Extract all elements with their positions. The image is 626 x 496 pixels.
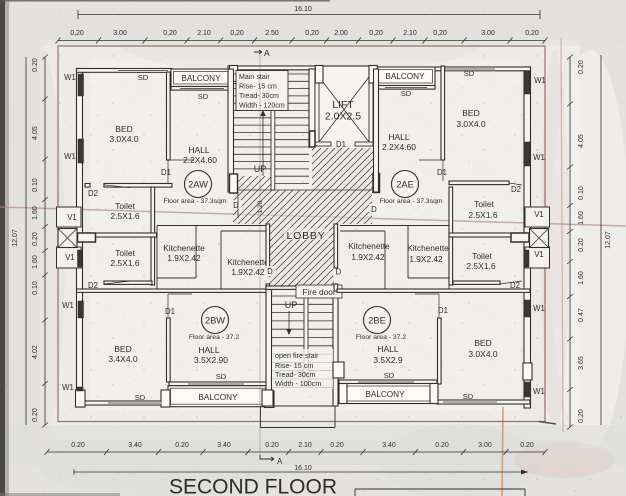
svg-text:open fire stair: open fire stair — [275, 351, 319, 360]
svg-text:0,20: 0,20 — [230, 30, 244, 37]
svg-text:2.5X1.6: 2.5X1.6 — [110, 258, 140, 268]
svg-text:Toilet: Toilet — [474, 199, 494, 209]
svg-text:0.20: 0.20 — [265, 442, 279, 449]
svg-text:2.10: 2.10 — [403, 30, 417, 37]
svg-text:HALL: HALL — [198, 345, 220, 355]
svg-text:Floor area - 37.2: Floor area - 37.2 — [356, 334, 406, 341]
svg-text:BALCONY: BALCONY — [385, 72, 425, 81]
svg-text:2.5X1.6: 2.5X1.6 — [110, 211, 140, 221]
svg-text:0.20: 0.20 — [32, 408, 39, 422]
svg-text:2.0X2.5: 2.0X2.5 — [325, 111, 361, 123]
svg-text:0,20: 0,20 — [369, 30, 383, 37]
svg-text:D1: D1 — [165, 307, 175, 316]
svg-text:4.05: 4.05 — [32, 126, 39, 140]
svg-text:Kitchenette: Kitchenette — [227, 257, 269, 267]
svg-text:12.07: 12.07 — [12, 229, 19, 247]
svg-text:SECOND FLOOR: SECOND FLOOR — [169, 476, 337, 496]
svg-text:SD: SD — [384, 371, 395, 380]
svg-text:3.40: 3.40 — [128, 442, 142, 449]
svg-text:0.20: 0.20 — [71, 442, 85, 449]
svg-text:W1: W1 — [64, 152, 76, 161]
svg-text:0.10: 0.10 — [578, 186, 585, 200]
svg-text:2.2X4.60: 2.2X4.60 — [382, 142, 416, 152]
svg-text:0.20: 0.20 — [330, 442, 344, 449]
svg-text:0.20: 0.20 — [32, 232, 39, 246]
svg-text:D: D — [371, 205, 377, 214]
svg-text:2.10: 2.10 — [197, 30, 211, 37]
svg-text:0.20: 0.20 — [32, 58, 39, 72]
svg-text:3.40: 3.40 — [382, 442, 396, 449]
svg-text:0.20: 0.20 — [175, 442, 189, 449]
svg-text:LOBBY: LOBBY — [286, 230, 325, 242]
svg-text:2.5X1.6: 2.5X1.6 — [466, 261, 496, 271]
svg-text:2.5X1.6: 2.5X1.6 — [468, 210, 498, 220]
svg-text:0.10: 0.10 — [32, 178, 39, 192]
svg-text:SD: SD — [216, 372, 227, 381]
svg-text:Toilet: Toilet — [115, 201, 135, 211]
svg-text:V1: V1 — [67, 213, 77, 222]
svg-text:SD: SD — [401, 89, 412, 98]
svg-text:UP: UP — [285, 300, 298, 310]
svg-text:3.40: 3.40 — [217, 442, 231, 449]
svg-text:Floor area - 37.3sqm: Floor area - 37.3sqm — [163, 198, 226, 205]
svg-text:SD: SD — [135, 393, 146, 402]
svg-text:4.02: 4.02 — [32, 345, 39, 359]
svg-text:Rise- 15 cm: Rise- 15 cm — [275, 361, 313, 370]
svg-text:1.60: 1.60 — [32, 255, 39, 269]
svg-text:Floor area - 37.2: Floor area - 37.2 — [189, 334, 239, 341]
svg-text:3.0X4.0: 3.0X4.0 — [468, 349, 498, 359]
svg-text:16.10: 16.10 — [294, 6, 312, 13]
svg-text:BALCONY: BALCONY — [181, 74, 221, 83]
svg-text:BED: BED — [474, 338, 491, 348]
svg-text:Kitchenette: Kitchenette — [348, 241, 390, 251]
svg-text:2BW: 2BW — [205, 316, 225, 326]
svg-text:Width - 100cm: Width - 100cm — [275, 379, 321, 388]
svg-text:0.20: 0.20 — [435, 442, 449, 449]
svg-text:W1: W1 — [533, 304, 545, 313]
svg-text:0,20: 0,20 — [525, 30, 539, 37]
svg-text:Fire door: Fire door — [302, 287, 335, 297]
svg-text:Tread- 30cm: Tread- 30cm — [239, 92, 279, 100]
svg-text:3.00: 3.00 — [481, 30, 495, 37]
svg-text:3.00: 3.00 — [478, 442, 492, 449]
svg-text:0.10: 0.10 — [32, 281, 39, 295]
svg-text:BED: BED — [462, 108, 479, 118]
svg-text:2.10: 2.10 — [298, 442, 312, 449]
svg-text:1.9X2.42: 1.9X2.42 — [409, 254, 443, 264]
svg-text:Tread- 30cm: Tread- 30cm — [275, 370, 315, 379]
svg-text:2AW: 2AW — [188, 180, 208, 190]
svg-text:Width - 120cm: Width - 120cm — [239, 101, 285, 109]
svg-text:2AE: 2AE — [396, 180, 414, 190]
svg-text:D1: D1 — [336, 140, 346, 149]
svg-text:D1: D1 — [161, 168, 171, 177]
svg-text:A: A — [277, 457, 283, 466]
svg-text:16.10: 16.10 — [294, 465, 312, 472]
svg-text:3.0X4.0: 3.0X4.0 — [456, 119, 486, 129]
svg-text:1.9X2.42: 1.9X2.42 — [167, 253, 201, 263]
svg-text:1.20: 1.20 — [257, 200, 264, 213]
svg-text:3.00: 3.00 — [113, 30, 127, 37]
svg-text:V1: V1 — [65, 253, 75, 262]
svg-text:D2: D2 — [88, 189, 98, 198]
svg-text:D: D — [336, 268, 342, 277]
svg-text:4.05: 4.05 — [578, 134, 585, 148]
svg-text:0,20: 0,20 — [305, 30, 319, 37]
svg-text:V1: V1 — [534, 210, 544, 219]
svg-text:SD: SD — [198, 92, 209, 101]
svg-text:W1: W1 — [534, 76, 546, 85]
svg-text:SD: SD — [463, 392, 474, 401]
svg-text:0,20: 0,20 — [433, 30, 447, 37]
svg-text:2.50: 2.50 — [265, 30, 279, 37]
svg-text:BALCONY: BALCONY — [365, 390, 405, 399]
svg-text:3.65: 3.65 — [578, 356, 585, 370]
svg-text:HALL: HALL — [377, 344, 399, 354]
svg-text:Toilet: Toilet — [472, 251, 492, 261]
svg-text:0.20: 0.20 — [578, 409, 585, 423]
svg-text:0.20: 0.20 — [578, 238, 585, 252]
svg-text:HALL: HALL — [388, 132, 410, 142]
svg-text:D1: D1 — [438, 306, 448, 315]
svg-text:W1: W1 — [62, 301, 74, 310]
svg-text:HALL: HALL — [188, 145, 210, 155]
svg-text:3.0X4.0: 3.0X4.0 — [109, 134, 139, 144]
svg-text:W1: W1 — [533, 387, 545, 396]
svg-text:2.2X4.60: 2.2X4.60 — [183, 155, 217, 165]
svg-text:A: A — [264, 48, 270, 58]
svg-text:SD: SD — [138, 73, 149, 82]
svg-text:D: D — [267, 267, 273, 276]
svg-text:1.60: 1.60 — [578, 271, 585, 285]
svg-text:Kitchenette: Kitchenette — [407, 243, 449, 253]
svg-text:BALCONY: BALCONY — [198, 393, 238, 402]
svg-text:3.4X4.0: 3.4X4.0 — [108, 354, 138, 364]
svg-text:3.5X2.9: 3.5X2.9 — [373, 355, 403, 365]
svg-text:Floor area - 37.3sqm: Floor area - 37.3sqm — [379, 198, 442, 205]
svg-text:2BE: 2BE — [368, 316, 386, 326]
svg-text:BED: BED — [115, 124, 132, 134]
svg-text:LIFT: LIFT — [332, 99, 354, 111]
svg-text:0,20: 0,20 — [163, 30, 177, 37]
svg-text:1.60: 1.60 — [578, 211, 585, 225]
svg-text:Toilet: Toilet — [115, 248, 135, 258]
svg-text:D2: D2 — [511, 185, 521, 194]
svg-text:SD: SD — [464, 69, 475, 78]
svg-text:1.60: 1.60 — [32, 206, 39, 220]
svg-text:Kitchenette: Kitchenette — [163, 243, 205, 253]
svg-text:2.00: 2.00 — [334, 30, 348, 37]
svg-text:Main stair: Main stair — [239, 73, 270, 81]
svg-text:0.47: 0.47 — [578, 308, 585, 322]
svg-text:0.20: 0.20 — [520, 442, 534, 449]
svg-text:Rise- 15 cm: Rise- 15 cm — [239, 83, 277, 91]
svg-text:D1: D1 — [437, 168, 447, 177]
svg-text:1.9X2.42: 1.9X2.42 — [351, 252, 385, 262]
svg-text:W1: W1 — [533, 153, 545, 162]
svg-text:0,20: 0,20 — [70, 30, 84, 37]
svg-text:3.5X2.90: 3.5X2.90 — [194, 355, 228, 365]
svg-text:V1: V1 — [534, 250, 544, 259]
svg-text:W1: W1 — [64, 73, 76, 82]
svg-text:12.07: 12.07 — [605, 231, 612, 249]
svg-text:W1: W1 — [62, 383, 74, 392]
svg-text:BED: BED — [114, 344, 131, 354]
svg-text:0.20: 0.20 — [578, 60, 585, 74]
